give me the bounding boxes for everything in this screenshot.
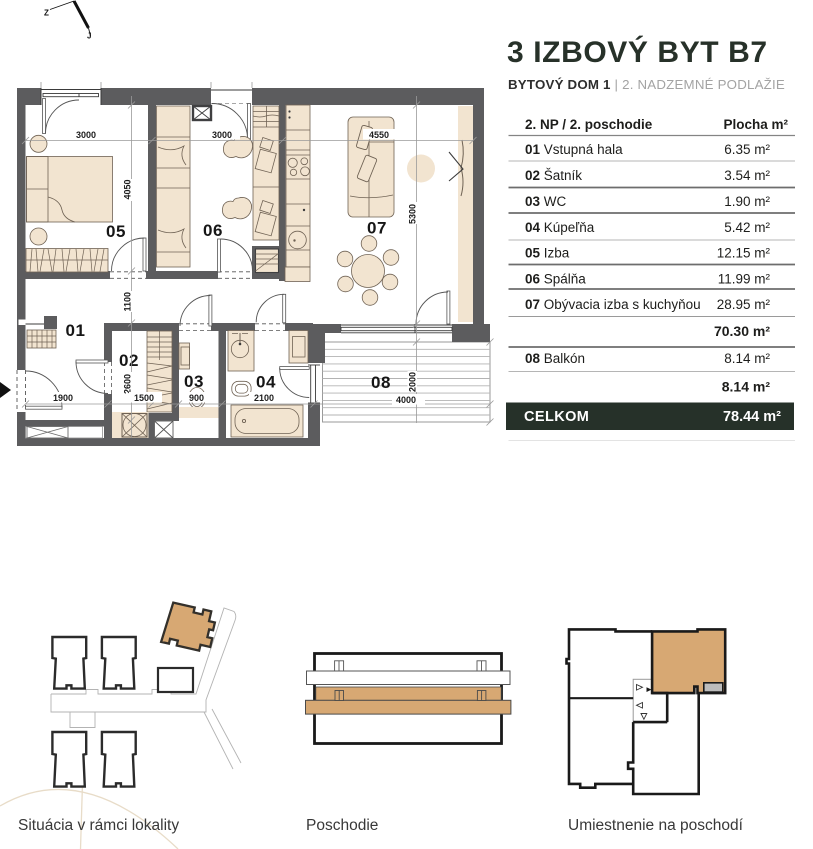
svg-text:Umiestnenie na poschodí: Umiestnenie na poschodí bbox=[568, 817, 744, 834]
svg-text:08: 08 bbox=[371, 373, 391, 392]
svg-text:4550: 4550 bbox=[369, 130, 389, 140]
svg-text:03: 03 bbox=[184, 372, 204, 391]
svg-text:02 Šatník: 02 Šatník bbox=[525, 168, 582, 183]
svg-text:8.14 m²: 8.14 m² bbox=[722, 379, 771, 395]
svg-text:Situácia v rámci lokality: Situácia v rámci lokality bbox=[18, 817, 179, 834]
svg-text:2000: 2000 bbox=[408, 372, 418, 392]
svg-text:CELKOM: CELKOM bbox=[524, 409, 589, 425]
svg-text:5300: 5300 bbox=[408, 204, 418, 224]
svg-text:70.30 m²: 70.30 m² bbox=[714, 323, 770, 339]
svg-text:03 WC: 03 WC bbox=[525, 194, 567, 209]
svg-text:05: 05 bbox=[106, 222, 126, 241]
svg-text:11.99 m²: 11.99 m² bbox=[718, 272, 771, 287]
svg-text:1100: 1100 bbox=[123, 292, 133, 312]
svg-text:1.90 m²: 1.90 m² bbox=[724, 194, 770, 209]
svg-text:J: J bbox=[87, 32, 91, 41]
svg-text:07: 07 bbox=[367, 219, 387, 238]
svg-text:2600: 2600 bbox=[123, 374, 133, 394]
svg-text:4050: 4050 bbox=[123, 179, 133, 199]
svg-text:3000: 3000 bbox=[212, 130, 232, 140]
svg-text:07 Obývacia izba s kuchyňou: 07 Obývacia izba s kuchyňou bbox=[525, 297, 701, 312]
svg-text:02: 02 bbox=[119, 351, 139, 370]
svg-text:3.54 m²: 3.54 m² bbox=[724, 168, 770, 183]
svg-text:06: 06 bbox=[203, 221, 223, 240]
svg-text:08 Balkón: 08 Balkón bbox=[525, 351, 585, 366]
svg-text:900: 900 bbox=[189, 393, 204, 403]
svg-text:8.14 m²: 8.14 m² bbox=[724, 351, 770, 366]
svg-text:06 Spálňa: 06 Spálňa bbox=[525, 272, 586, 287]
svg-text:2100: 2100 bbox=[254, 393, 274, 403]
svg-text:Plocha m²: Plocha m² bbox=[723, 117, 788, 132]
svg-text:05 Izba: 05 Izba bbox=[525, 246, 570, 261]
svg-text:6.35 m²: 6.35 m² bbox=[724, 142, 770, 157]
svg-text:1900: 1900 bbox=[53, 393, 73, 403]
svg-text:78.44 m²: 78.44 m² bbox=[723, 409, 781, 425]
svg-text:Poschodie: Poschodie bbox=[306, 817, 378, 834]
svg-text:3 IZBOVÝ BYT B7: 3 IZBOVÝ BYT B7 bbox=[507, 35, 768, 69]
svg-text:28.95 m²: 28.95 m² bbox=[717, 297, 771, 312]
svg-text:12.15 m²: 12.15 m² bbox=[717, 246, 771, 261]
svg-text:Z: Z bbox=[44, 9, 49, 18]
svg-text:BYTOVÝ DOM 1 | 2. NADZEMNÉ POD: BYTOVÝ DOM 1 | 2. NADZEMNÉ PODLAŽIE bbox=[508, 77, 785, 92]
svg-text:1500: 1500 bbox=[134, 393, 154, 403]
svg-text:4000: 4000 bbox=[396, 395, 416, 405]
svg-text:3000: 3000 bbox=[76, 130, 96, 140]
svg-text:01: 01 bbox=[66, 321, 86, 340]
svg-text:5.42 m²: 5.42 m² bbox=[724, 220, 770, 235]
svg-text:01 Vstupná hala: 01 Vstupná hala bbox=[525, 142, 623, 157]
svg-text:04 Kúpeľňa: 04 Kúpeľňa bbox=[525, 220, 595, 235]
svg-text:04: 04 bbox=[256, 373, 276, 392]
svg-text:2. NP / 2. poschodie: 2. NP / 2. poschodie bbox=[525, 117, 653, 132]
